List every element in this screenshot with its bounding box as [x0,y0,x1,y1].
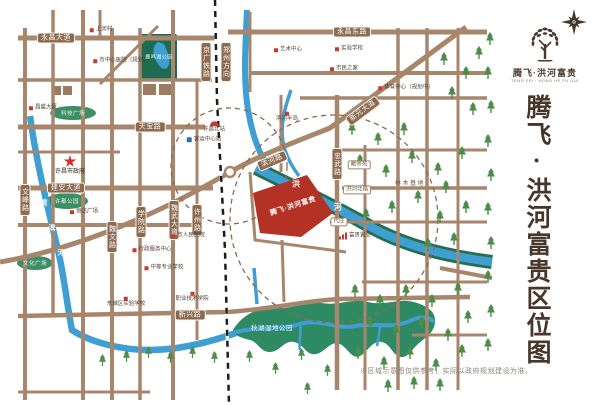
landmark-hengda-plaza: 恒达广场 [70,209,98,215]
industry-bars-icon [339,233,347,240]
tributary-stream [282,90,299,176]
honghe-river-char: 河 [334,202,342,213]
landmark-fugui-development: 富贵置业 [339,233,371,240]
area-label-daizhuang: 代庄 [330,217,347,226]
park-label-xudu-park: 许都公园 [55,197,79,205]
landmark-admin-service-center: 行政服务中心 [132,247,171,253]
park-label-wenhua-square: 文化广场 [23,259,47,267]
area-label-xiandiyuan: 献帝苑 [348,160,371,169]
landmark-bus-terminal: 客运中心站 [187,137,222,143]
road-label-tianbao: 天宝路 [135,122,166,133]
landmark-sports-center: 体育中心（规划中） [378,85,434,91]
road-label-wenfeng: 文峰路 [20,184,31,216]
road-label-jianan-avenue: 建安大道 [47,183,85,194]
landmark-icon [132,248,136,252]
brand-logo-tagline: TENG FEI · HONG HE FU GUI [500,78,590,83]
landmark-binhe-peninsula: 滨河半岛 [276,112,298,123]
landmark-citizen-home: 市民之家 [330,66,358,72]
compass-icon [561,9,587,35]
bus-station-icon [187,138,192,143]
road-label-weiwen: 魏文路 [107,221,118,253]
landmark-city-government: 许昌市政府 [55,155,85,175]
railway-label-jingguang: 京广铁路 [201,42,212,82]
landmark-art-center: 艺术中心 [274,47,302,53]
park-label-keji-square: 科技广场 [61,109,85,117]
landmark-vocational-college: 职业技术学院 [175,292,208,303]
landmark-shanghe-village: 上河村 [90,27,113,33]
landmark-icon [144,266,148,270]
map-vertical-title: 腾飞·洪河富贵区位图 [524,94,549,366]
park-label-wetland: 秋湖湿地公园 [251,322,293,332]
landmark-icon [335,47,339,51]
qingyi-river-char: 河 [58,248,65,258]
road-label-yongchang-east: 永昌东路 [333,27,371,38]
area-label-honghe-north: 洪河北路 [343,185,371,194]
landmark-north-railway-station: 许昌北站 [203,121,225,133]
qingyi-river-char: 清 [41,198,48,208]
landmark-icon [378,86,382,90]
logo-tree-icon [531,28,559,62]
landmark-icon [90,28,94,32]
road-label-xuzhou: 许州路 [192,204,203,236]
honghe-river-char: 洪 [292,179,300,190]
railway-label-zhengzhou-direction: 郑州方向 [221,42,232,82]
landmark-secondary-school: 中等专业学校 [144,265,183,271]
road-label-xueyuan: 学院路 [136,206,147,238]
landmark-icon [93,59,97,63]
landmark-central-hospital: 市中心医院（规划） [93,58,149,64]
landmark-icon [70,210,74,214]
landmark-icon [29,106,33,110]
landmark-experimental-school: 实验学校 [335,46,363,52]
map-disclaimer: ※区域示意图仅供参考，实际以政府规划建设为准。 [360,366,533,376]
park-label-lake: 鹿鸣湖公园 [145,54,173,61]
government-star-icon [63,155,76,168]
road-label-zhongwu: 忠武路 [332,148,343,180]
landmark-peoples-hospital: 市人民医院 [171,233,205,239]
landmark-icon [330,67,334,71]
road-label-yongchang-avenue: 永昌大道 [37,33,75,44]
area-label-forest-base: 林木基地 [395,181,425,187]
landmark-changsheng-tower: 昌盛大厦 [29,105,57,111]
landmark-icon [171,234,175,238]
landmark-district-school: 东城区实验学校 [107,297,146,308]
roundabout [225,167,235,177]
landmark-icon [274,48,278,52]
road-label-xinxing: 新兴路 [175,310,206,321]
location-map-page: 永昌大道 永昌东路 天宝路 建安大道 新兴路 新元大道 滨河路 文峰路 魏文路 … [0,0,600,405]
qingyi-river-char: 潩 [49,223,56,233]
